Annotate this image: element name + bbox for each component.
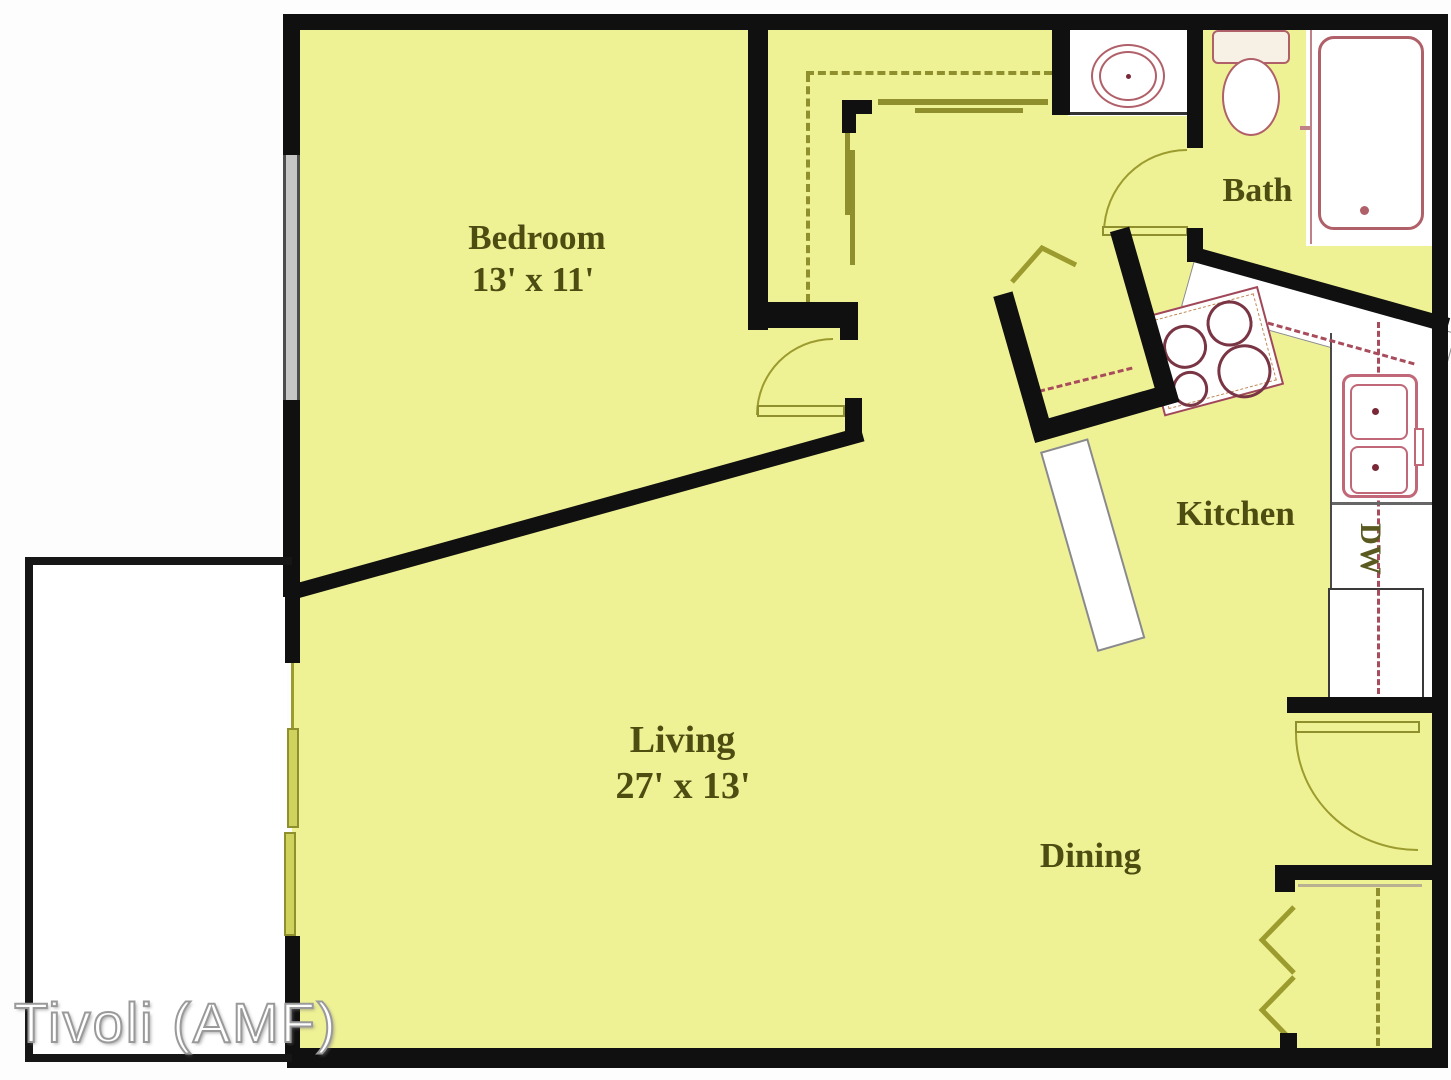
vanity-counter-edge [1052, 112, 1190, 115]
bedroom-label: Bedroom [452, 218, 622, 258]
bathtub [1318, 36, 1424, 230]
closet-wall-stub [842, 100, 856, 133]
kitchen-faucet [1414, 428, 1424, 466]
exterior-wall-right [1432, 14, 1448, 1068]
bedroom-closet-dashed-line [806, 74, 810, 302]
dishwasher-label: DW [1337, 519, 1403, 579]
bath-wall [1187, 28, 1203, 148]
exterior-wall-left [285, 592, 300, 663]
kitchen-lower-cabinet [1328, 588, 1424, 700]
counter-section-line [1332, 502, 1432, 505]
bedroom-closet-dashed-line [806, 71, 1052, 75]
closet-shelf [878, 99, 1048, 105]
pantry-closet-dashed-line [1376, 888, 1380, 1046]
bath-label: Bath [1210, 172, 1305, 210]
bedroom-wall [748, 14, 768, 330]
exterior-wall-top [287, 14, 1448, 30]
dining-closet-wall [1275, 865, 1445, 880]
kitchen-sink-bowl [1350, 384, 1408, 440]
vanity-wall [1052, 20, 1070, 115]
sliding-glass-door-panel [287, 728, 299, 828]
exterior-wall-bottom [287, 1048, 1448, 1068]
closet-rod [850, 150, 855, 265]
bedroom-window [283, 155, 300, 400]
pantry-shelf-line [1298, 884, 1422, 887]
bedroom-door-jamb [840, 302, 858, 340]
floor-plan: Bedroom 13' x 11' Living 27' x 13' Dinin… [0, 0, 1451, 1080]
entry-door [1295, 721, 1420, 733]
kitchen-sink-bowl [1350, 446, 1408, 494]
living-label: Living [610, 718, 755, 762]
bedroom-diagonal-wall-end [845, 398, 862, 434]
bedroom-door [757, 405, 845, 417]
bathtub-drain [1360, 206, 1369, 215]
exterior-wall-left [283, 400, 300, 597]
kitchen-wall [1287, 697, 1445, 713]
sliding-glass-door-panel [284, 832, 296, 936]
patio-wall [25, 1054, 292, 1062]
bathtub-deck-line [1310, 30, 1312, 244]
dining-label: Dining [1028, 836, 1153, 876]
closet-shelf [915, 108, 1023, 113]
dining-closet-jamb [1280, 1033, 1297, 1053]
toilet-bowl [1222, 58, 1280, 136]
patio-floor [33, 565, 287, 1054]
dining-closet-jamb [1275, 865, 1295, 892]
patio-wall [25, 557, 33, 1062]
kitchen-sink-drain [1372, 408, 1379, 415]
exterior-wall-left [283, 14, 300, 155]
kitchen-sink-drain [1372, 464, 1379, 471]
sliding-door-track [291, 663, 294, 728]
living-dimensions: 27' x 13' [598, 764, 768, 808]
bathtub-deck-line [1300, 126, 1312, 130]
watermark: Tivoli (AMF) [14, 990, 338, 1055]
vanity-sink-drain [1126, 74, 1131, 79]
bedroom-dimensions: 13' x 11' [448, 260, 618, 300]
patio-wall [28, 557, 292, 565]
kitchen-label: Kitchen [1168, 494, 1303, 534]
